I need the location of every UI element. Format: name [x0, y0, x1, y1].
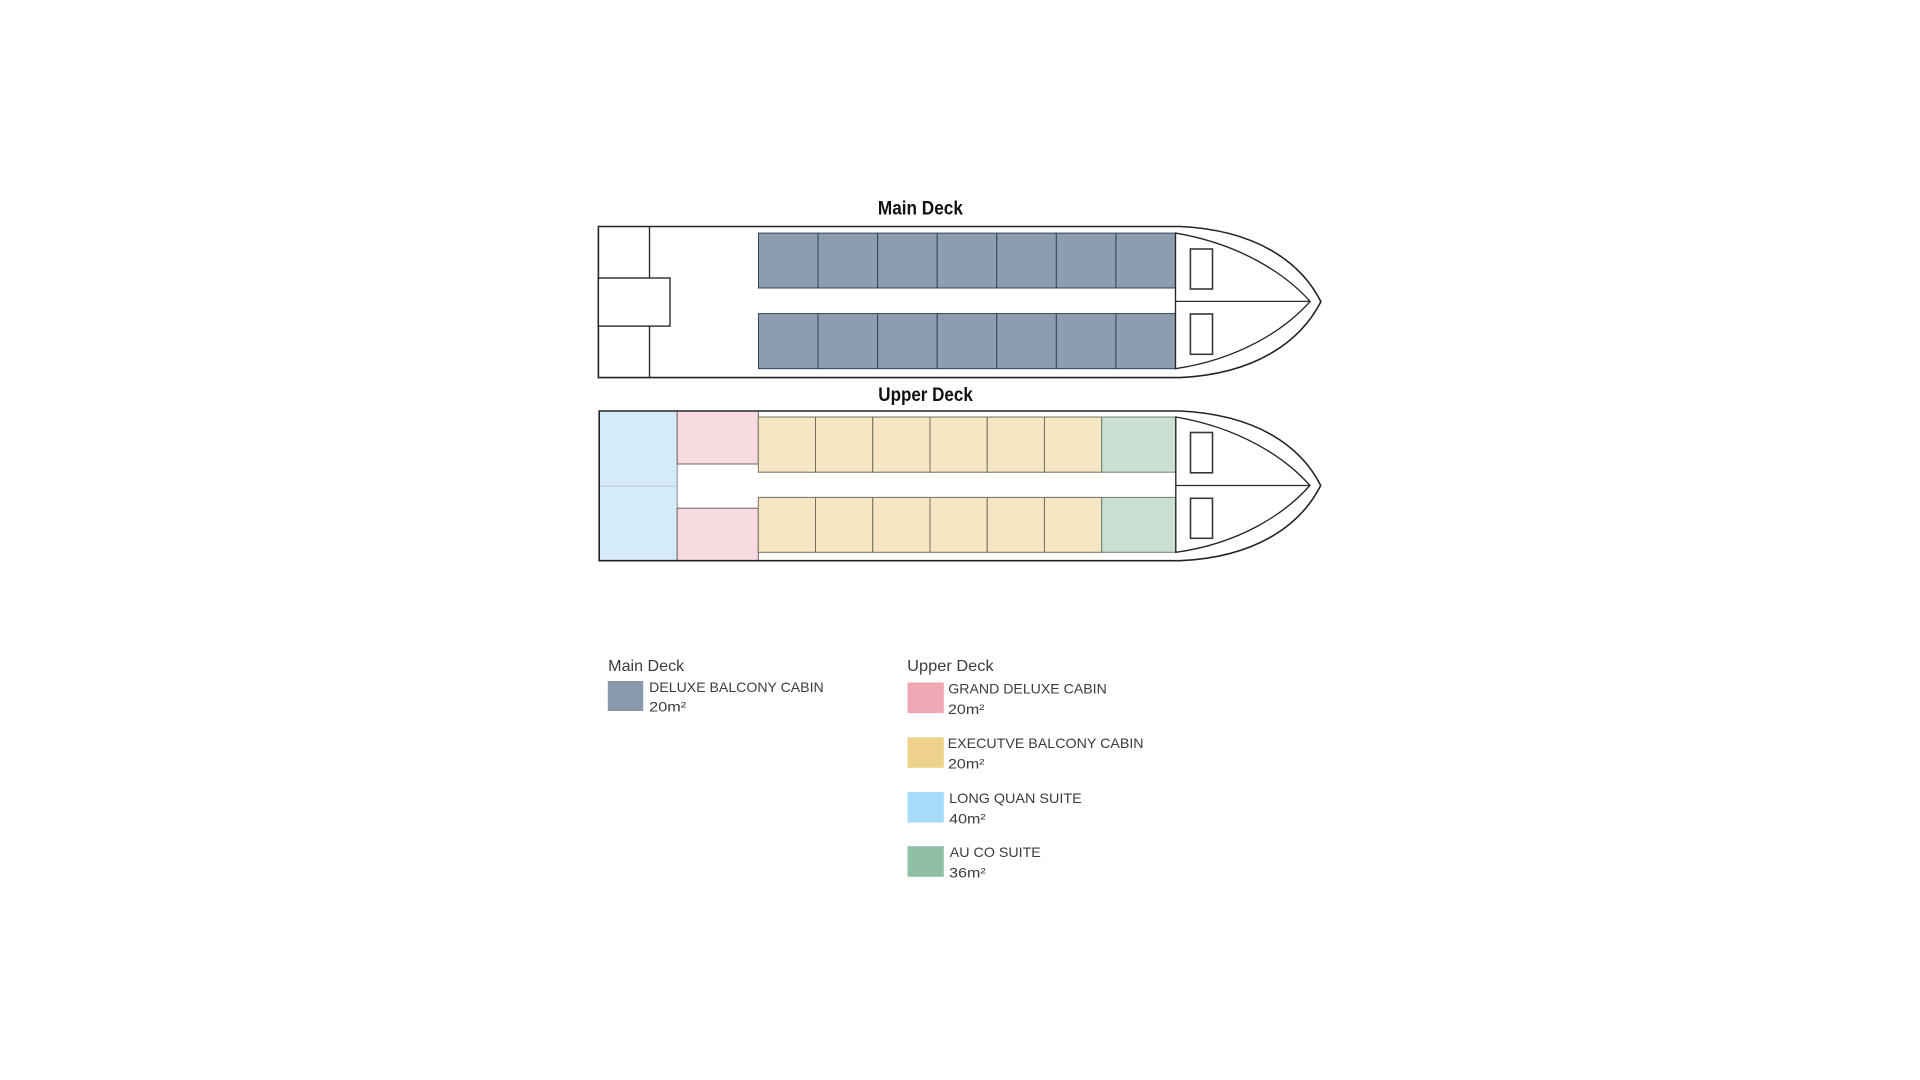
svg-text:Upper Deck: Upper Deck: [907, 658, 995, 675]
svg-text:Upper Deck: Upper Deck: [878, 384, 973, 406]
svg-text:20m²: 20m²: [948, 701, 985, 717]
svg-text:LONG QUAN SUITE: LONG QUAN SUITE: [949, 790, 1081, 806]
svg-text:AU CO SUITE: AU CO SUITE: [950, 844, 1041, 860]
svg-text:20m²: 20m²: [948, 756, 985, 772]
svg-text:20m²: 20m²: [649, 699, 686, 715]
svg-text:36m²: 36m²: [949, 865, 986, 881]
svg-text:Main Deck: Main Deck: [608, 658, 685, 675]
svg-text:GRAND DELUXE CABIN: GRAND DELUXE CABIN: [948, 681, 1107, 697]
svg-text:40m²: 40m²: [949, 811, 986, 827]
svg-text:Main Deck: Main Deck: [878, 198, 963, 220]
svg-text:EXECUTVE BALCONY CABIN: EXECUTVE BALCONY CABIN: [948, 735, 1144, 751]
svg-text:DELUXE BALCONY CABIN: DELUXE BALCONY CABIN: [649, 679, 824, 695]
